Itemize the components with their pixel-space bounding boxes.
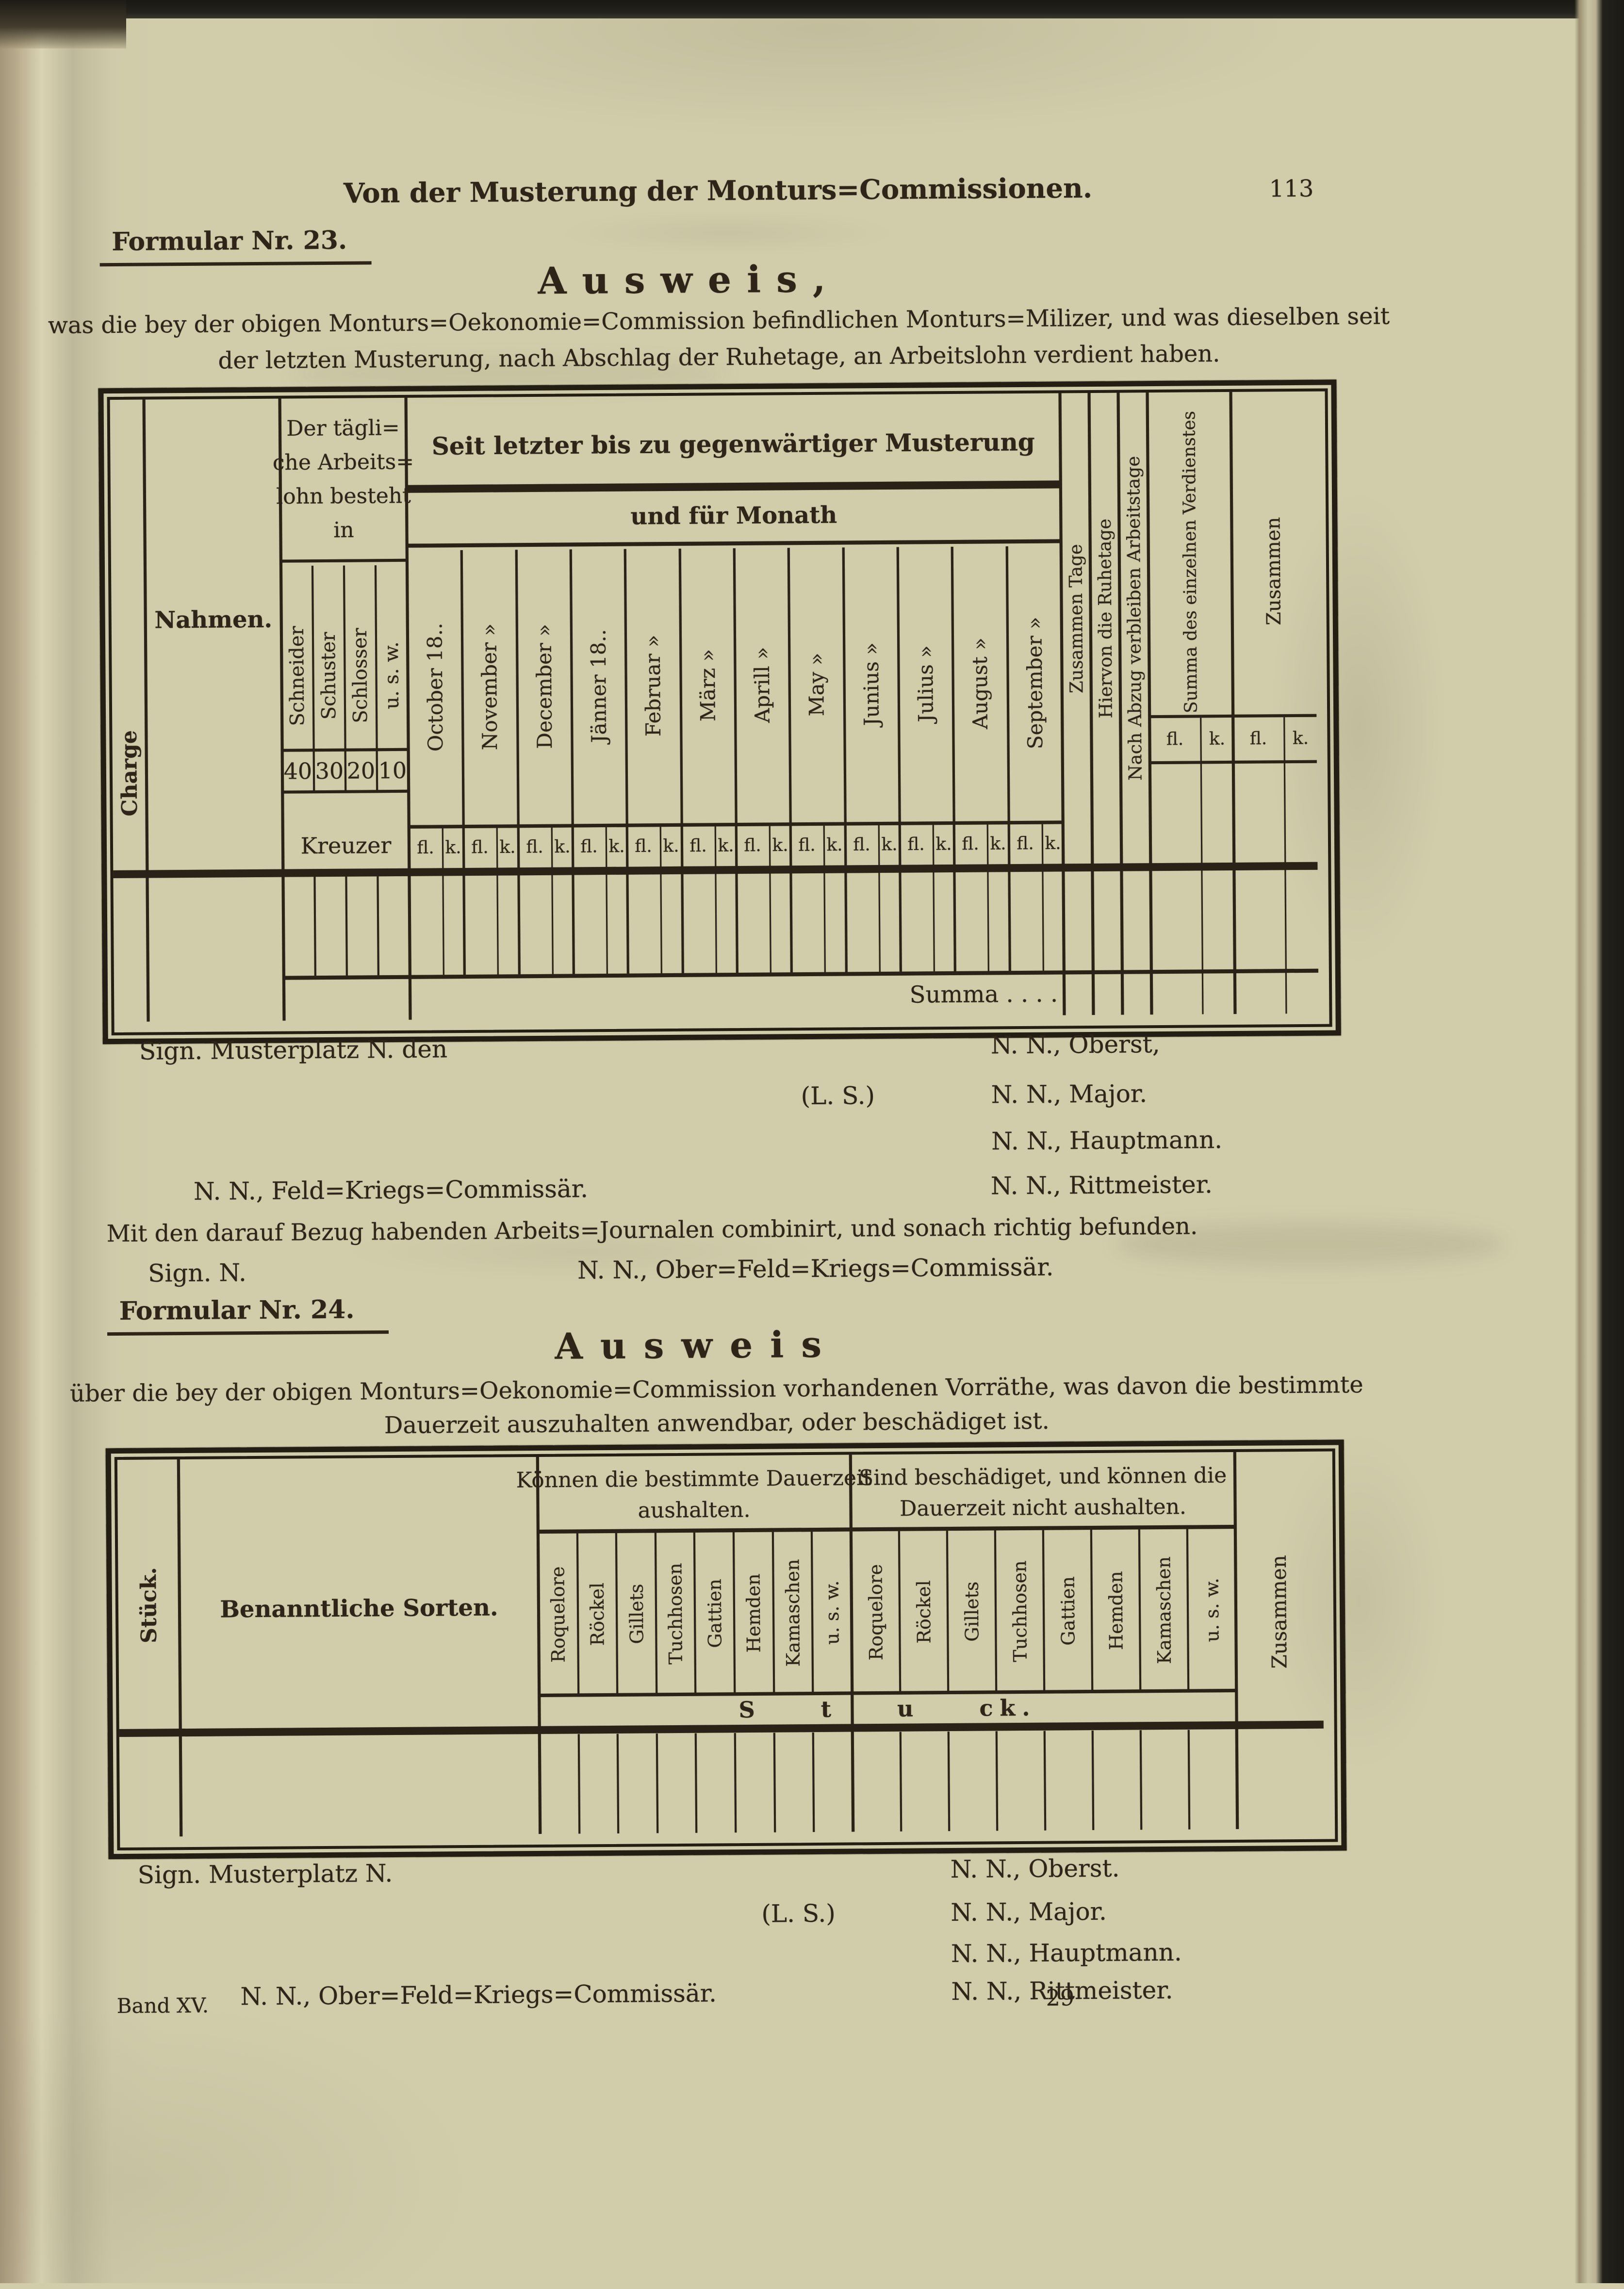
sorten-subcolumn-line	[656, 1733, 658, 1833]
table23-frame: ChargeNahmen.Der tägli=che Arbeits=lohn …	[98, 379, 1341, 1044]
sorten-subcolumn-line	[994, 1530, 997, 1691]
group-header-rule	[538, 1525, 1235, 1534]
table23: ChargeNahmen.Der tägli=che Arbeits=lohn …	[110, 392, 1319, 1022]
kreuzer-label: k.	[772, 835, 788, 855]
florin-label: fl.	[1166, 729, 1184, 749]
charge-column-label: Charge	[117, 730, 142, 817]
month-column-label: Februar »	[640, 635, 665, 736]
nahmen-column-label: Nahmen.	[154, 606, 272, 634]
days-column-label: Hiervon die Ruhetage	[1094, 519, 1116, 719]
florin-label: fl.	[689, 836, 707, 856]
sig23-oberst: N. N., Oberst,	[991, 1030, 1160, 1059]
header-body-rule	[119, 1721, 1324, 1737]
month-column-label: Jänner 18..	[586, 629, 611, 743]
summa-row-label: Summa . . . .	[909, 980, 1058, 1008]
footer-volume: Band XV.	[117, 1994, 209, 2018]
florin-label: fl.	[471, 837, 489, 857]
days-column-label: Zusammen Tage	[1065, 544, 1087, 693]
florin-kreuzer-divider	[823, 826, 825, 972]
form24-intro-line1: über die bey der obigen Monturs=Oekonomi…	[70, 1371, 1363, 1407]
florin-label: fl.	[853, 835, 870, 855]
scan-topleft-corner	[0, 0, 126, 49]
kreuzer-label: k.	[1209, 729, 1226, 749]
sorten-item-label: Kamaschen	[782, 1559, 804, 1667]
sorten-item-label: Roquelore	[547, 1566, 569, 1663]
month-separator	[1005, 546, 1011, 971]
sorten-item-label: Hemden	[742, 1573, 764, 1652]
month-column-label: September »	[1022, 617, 1047, 749]
wage-group-header-line: in	[333, 518, 354, 542]
sorten-item-label: Hemden	[1105, 1571, 1127, 1650]
month-separator	[678, 549, 684, 973]
florin-kreuzer-divider	[714, 826, 717, 973]
wage-subcolumn-line	[343, 566, 346, 791]
wage-subcolumn-line	[377, 876, 379, 975]
sorten-subcolumn-line	[900, 1732, 902, 1831]
month-separator	[569, 549, 574, 974]
sorten-item-label: Roquelore	[865, 1564, 886, 1661]
table24-frame: Stück.Benanntliche Sorten.Können die bes…	[106, 1439, 1347, 1859]
zusammen-column-label: Zusammen	[1267, 1555, 1292, 1669]
florin-kreuzer-divider	[605, 827, 607, 974]
zusammen-column-label: Zusammen	[1262, 517, 1285, 626]
form24-intro-line2: Dauerzeit auszuhalten anwendbar, oder be…	[384, 1407, 1050, 1439]
sorten-subcolumn-line	[1188, 1730, 1190, 1830]
sorten-item-label: u. s. w.	[821, 1580, 843, 1645]
sorten-subcolumn-line	[898, 1531, 901, 1692]
month-column-label: März »	[696, 649, 720, 722]
month-separator	[951, 547, 956, 971]
florin-label: fl.	[1250, 729, 1267, 749]
period-header-rule	[407, 480, 1061, 492]
sig23-major: N. N., Major.	[991, 1079, 1147, 1109]
kreuzer-unit-label: Kreuzer	[300, 832, 391, 859]
form23-label: Formular Nr. 23.	[112, 226, 347, 257]
wage-subcolumn-line	[313, 877, 316, 976]
sorten-column-label: Benanntliche Sorten.	[220, 1594, 498, 1623]
florin-label: fl.	[635, 836, 652, 856]
sorten-subcolumn-line	[655, 1533, 657, 1694]
summa-verdienst-column-label: Summa des einzelnen Verdienstes	[1179, 411, 1201, 713]
month-column-label: Julius »	[914, 645, 938, 722]
sig23-oberfeld: N. N., Ober=Feld=Kriegs=Commissär.	[577, 1253, 1054, 1285]
sorten-subcolumn-line	[1044, 1731, 1046, 1831]
kreuzer-label: k.	[1293, 728, 1309, 748]
florin-kreuzer-divider	[551, 828, 553, 974]
monath-rule	[407, 539, 1061, 547]
daily-rate-value: 10	[378, 757, 407, 784]
period-group-subheader: und für Monath	[630, 502, 837, 530]
sig23-place: Sign. Musterplatz N. den	[139, 1035, 448, 1065]
group-bad-header-line: Sind beschädiget, und können die	[859, 1463, 1227, 1490]
sig23-seal: (L. S.)	[801, 1081, 875, 1110]
month-separator	[515, 550, 520, 974]
kreuzer-label: k.	[445, 838, 461, 858]
kreuzer-label: k.	[826, 835, 843, 855]
month-column-label: December »	[532, 624, 557, 749]
trade-column-label: Schneider	[286, 626, 309, 726]
trade-column-label: Schlosser	[349, 628, 372, 723]
sorten-subcolumn-line	[1092, 1731, 1094, 1830]
month-separator	[896, 547, 902, 972]
sig24-major: N. N., Major.	[951, 1897, 1107, 1927]
form23-underline	[100, 261, 372, 266]
kreuzer-label: k.	[663, 836, 679, 856]
sig23-feldkriegscommissar: N. N., Feld=Kriegs=Commissär.	[194, 1175, 588, 1206]
sorten-subcolumn-line	[734, 1733, 737, 1832]
sorten-item-label: Tuchhosen	[664, 1563, 686, 1665]
month-separator	[787, 548, 792, 972]
column-separator	[143, 400, 150, 1022]
sorten-item-label: Gattien	[1057, 1576, 1079, 1646]
wage-group-header-line: che Arbeits=	[273, 449, 414, 475]
days-column-label: Nach Abzug verbleiben Arbeitstage	[1123, 456, 1146, 781]
scan-top-edge	[0, 0, 1624, 18]
wage-rates-rule	[282, 748, 409, 752]
wage-subcolumn-line	[375, 565, 378, 791]
florin-label: fl.	[907, 834, 925, 854]
group-good-header-line: aushalten.	[638, 1497, 750, 1523]
stueck-unit-row: S t u ck.	[738, 1695, 1036, 1723]
stueck-column-label: Stück.	[136, 1567, 162, 1643]
sorten-subcolumn-line	[948, 1732, 950, 1831]
form24-title: Ausweis	[555, 1324, 839, 1368]
summa-row-rule	[284, 969, 1318, 980]
sorten-subcolumn-line	[617, 1734, 619, 1833]
column-separator	[1233, 1452, 1239, 1829]
sig23-note: Mit den darauf Bezug habenden Arbeits=Jo…	[106, 1212, 1197, 1247]
column-separator	[849, 1455, 854, 1831]
florin-label: fl.	[526, 837, 543, 857]
florin-kreuzer-divider	[769, 826, 771, 973]
florin-kreuzer-divider	[442, 828, 444, 975]
kreuzer-label: k.	[1045, 834, 1061, 853]
wage-rates-rule	[282, 790, 409, 794]
form23-intro-line2: der letzten Musterung, nach Abschlag der…	[218, 340, 1220, 374]
month-column-label: Junius »	[859, 642, 884, 726]
sorten-subcolumn-line	[1090, 1530, 1093, 1691]
kreuzer-label: k.	[718, 836, 734, 856]
sorten-subcolumn-line	[1042, 1530, 1045, 1691]
money-flk-rule	[1233, 760, 1317, 764]
daily-rate-value: 40	[283, 758, 312, 784]
sorten-subcolumn-line	[772, 1532, 775, 1693]
sig23-rittmeister: N. N., Rittmeister.	[991, 1170, 1213, 1200]
kreuzer-label: k.	[881, 834, 898, 854]
form23-title: Ausweis,	[538, 257, 841, 302]
money-label-rule	[1233, 714, 1316, 718]
sorten-item-label: Tuchhosen	[1009, 1560, 1031, 1662]
column-separator	[1088, 393, 1095, 1015]
sorten-item-label: Röckel	[913, 1580, 935, 1644]
florin-label: fl.	[417, 838, 434, 858]
sorten-subcolumn-line	[1186, 1529, 1189, 1690]
sig24-hauptmann: N. N., Hauptmann.	[951, 1938, 1182, 1968]
column-separator	[1230, 392, 1237, 1014]
table24: Stück.Benanntliche Sorten.Können die bes…	[117, 1452, 1324, 1837]
month-separator	[842, 548, 847, 972]
florin-kreuzer-divider	[986, 824, 989, 971]
column-separator	[536, 1457, 541, 1834]
scan-right-edge	[1575, 0, 1624, 2283]
printed-page: Von der Musterung der Monturs=Commission…	[0, 0, 1624, 2289]
sorten-subcolumn-line	[812, 1733, 815, 1832]
sig23-hauptmann: N. N., Hauptmann.	[991, 1126, 1222, 1155]
sorten-subcolumn-line	[996, 1731, 998, 1831]
form24-underline	[107, 1330, 389, 1336]
florin-label: fl.	[962, 834, 979, 854]
sorten-subcolumn-line	[773, 1733, 776, 1832]
group-good-header-line: Können die bestimmte Dauerzeit	[516, 1466, 871, 1493]
month-column-label: August »	[968, 638, 992, 729]
florin-kreuzer-divider	[878, 825, 880, 972]
kreuzer-label: k.	[990, 834, 1006, 854]
sorten-subcolumn-line	[615, 1533, 618, 1694]
wage-header-rule	[281, 559, 407, 563]
money-label-rule	[1149, 715, 1233, 718]
form24-label: Formular Nr. 24.	[119, 1295, 354, 1326]
group-bad-header-line: Dauerzeit nicht aushalten.	[900, 1494, 1186, 1521]
sig24-place: Sign. Musterplatz N.	[138, 1859, 393, 1889]
sorten-subcolumn-line	[695, 1733, 697, 1833]
kreuzer-label: k.	[499, 837, 516, 857]
footer-sheet-number: 29	[1046, 1984, 1074, 2011]
period-group-header: Seit letzter bis zu gegenwärtiger Muster…	[432, 427, 1035, 460]
kreuzer-label: k.	[554, 837, 571, 857]
sorten-item-label: Kamaschen	[1153, 1556, 1175, 1664]
trade-column-label: Schuster	[317, 632, 340, 719]
sorten-subcolumn-line	[1138, 1529, 1141, 1690]
month-column-label: May »	[804, 653, 829, 716]
form23-intro-line1: was die bey der obigen Monturs=Oekonomie…	[48, 303, 1390, 339]
sorten-item-label: Gillets	[626, 1584, 648, 1644]
sorten-item-label: Gillets	[961, 1582, 983, 1642]
sorten-subcolumn-line	[811, 1532, 814, 1693]
sorten-subcolumn-line	[946, 1531, 949, 1692]
column-separator	[1146, 392, 1153, 1014]
month-separator	[733, 548, 738, 973]
florin-kreuzer-divider	[1041, 824, 1044, 971]
running-head: Von der Musterung der Monturs=Commission…	[344, 172, 1093, 210]
kreuzer-label: k.	[608, 836, 625, 856]
sorten-subcolumn-line	[578, 1734, 580, 1833]
sorten-subcolumn-line	[693, 1533, 696, 1694]
florin-kreuzer-divider	[496, 828, 498, 975]
sorten-subcolumn-line	[733, 1532, 736, 1693]
florin-label: fl.	[1017, 834, 1034, 853]
month-separator	[623, 549, 629, 974]
sorten-item-label: u. s. w.	[1201, 1578, 1223, 1642]
page-number: 113	[1269, 175, 1314, 203]
daily-rate-value: 30	[315, 758, 344, 784]
sig24-oberfeld: N. N., Ober=Feld=Kriegs=Commissär.	[240, 1979, 717, 2011]
florin-label: fl.	[798, 835, 816, 855]
sorten-item-label: Gattien	[704, 1579, 726, 1648]
wage-group-header-line: Der tägli=	[286, 415, 400, 441]
florin-kreuzer-divider	[932, 825, 935, 971]
florin-label: fl.	[580, 837, 598, 857]
sig24-oberst: N. N., Oberst.	[951, 1854, 1120, 1883]
month-column-label: Aprill »	[750, 647, 774, 723]
trade-column-label: u. s. w.	[380, 641, 403, 709]
column-separator	[177, 1459, 182, 1836]
florin-kreuzer-divider	[659, 827, 662, 973]
sorten-item-label: Röckel	[587, 1583, 608, 1646]
money-flk-rule	[1150, 761, 1233, 764]
kreuzer-label: k.	[935, 834, 952, 854]
sig24-seal: (L. S.)	[761, 1899, 836, 1928]
sig23-sign-short: Sign. N.	[148, 1259, 246, 1287]
daily-rate-value: 20	[346, 757, 375, 784]
month-column-label: November »	[477, 623, 502, 751]
month-separator	[460, 550, 465, 975]
wage-group-header-line: lohn besteht	[276, 483, 411, 509]
month-column-label: October 18..	[423, 623, 447, 752]
sorten-subcolumn-line	[576, 1533, 579, 1694]
sorten-subcolumn-line	[1140, 1730, 1142, 1830]
wage-subcolumn-line	[345, 877, 347, 976]
florin-label: fl.	[744, 835, 761, 855]
